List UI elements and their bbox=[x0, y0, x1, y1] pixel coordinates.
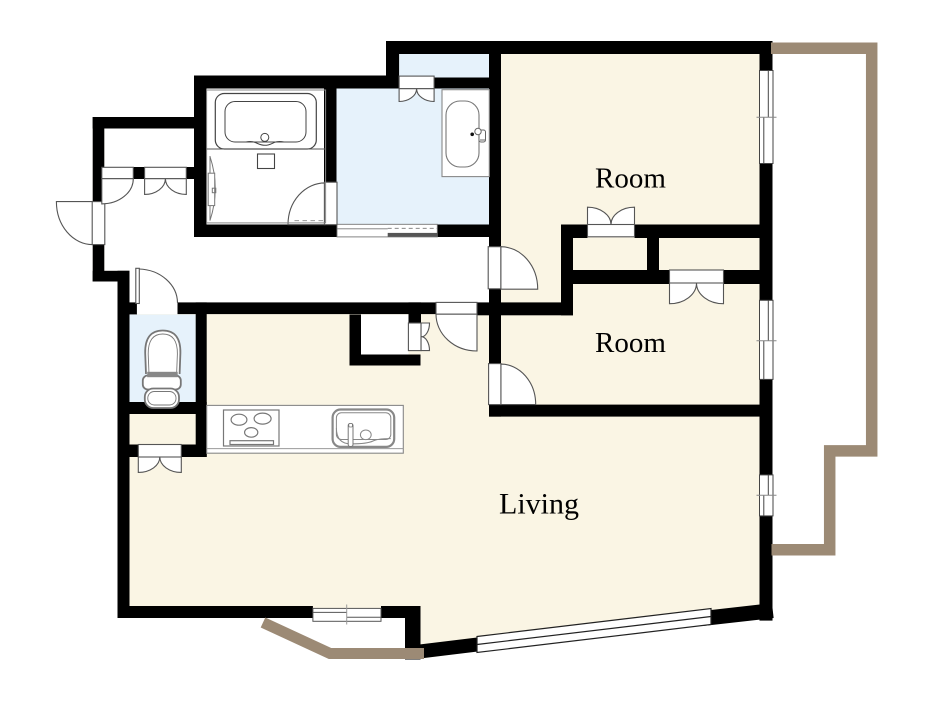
svg-text:Room: Room bbox=[595, 163, 666, 195]
svg-text:Room: Room bbox=[595, 327, 666, 359]
svg-text:Living: Living bbox=[499, 488, 579, 521]
